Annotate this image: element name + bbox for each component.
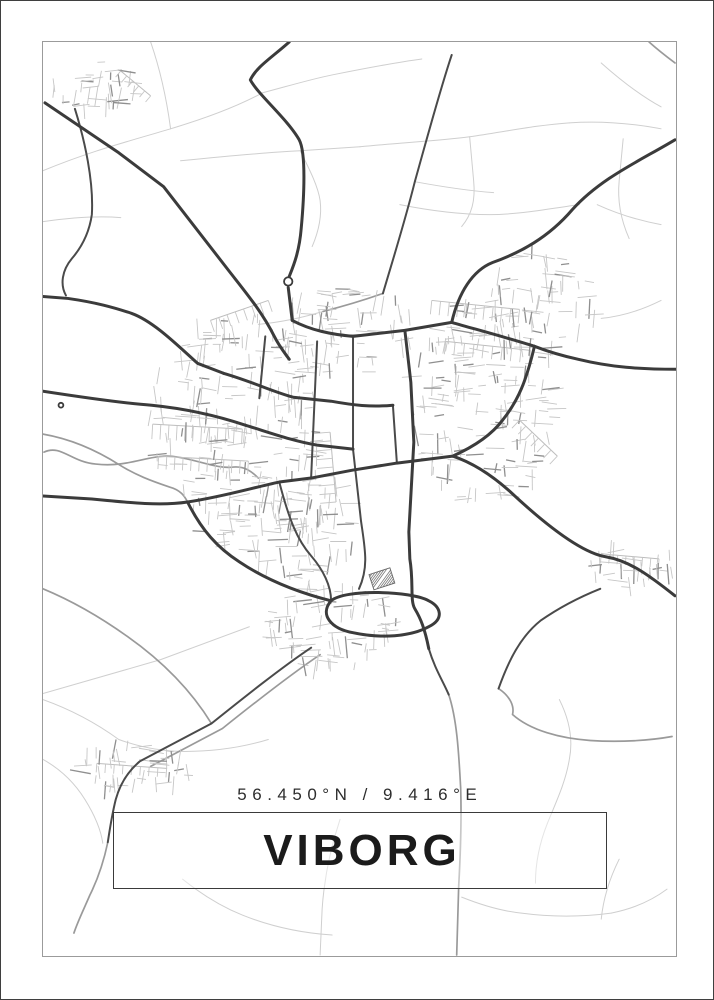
map-poster: 56.450°N / 9.416°E VIBORG [0, 0, 714, 1000]
title-box: VIBORG [113, 812, 607, 889]
coordinates-label: 56.450°N / 9.416°E [1, 785, 713, 805]
city-title: VIBORG [259, 829, 461, 873]
